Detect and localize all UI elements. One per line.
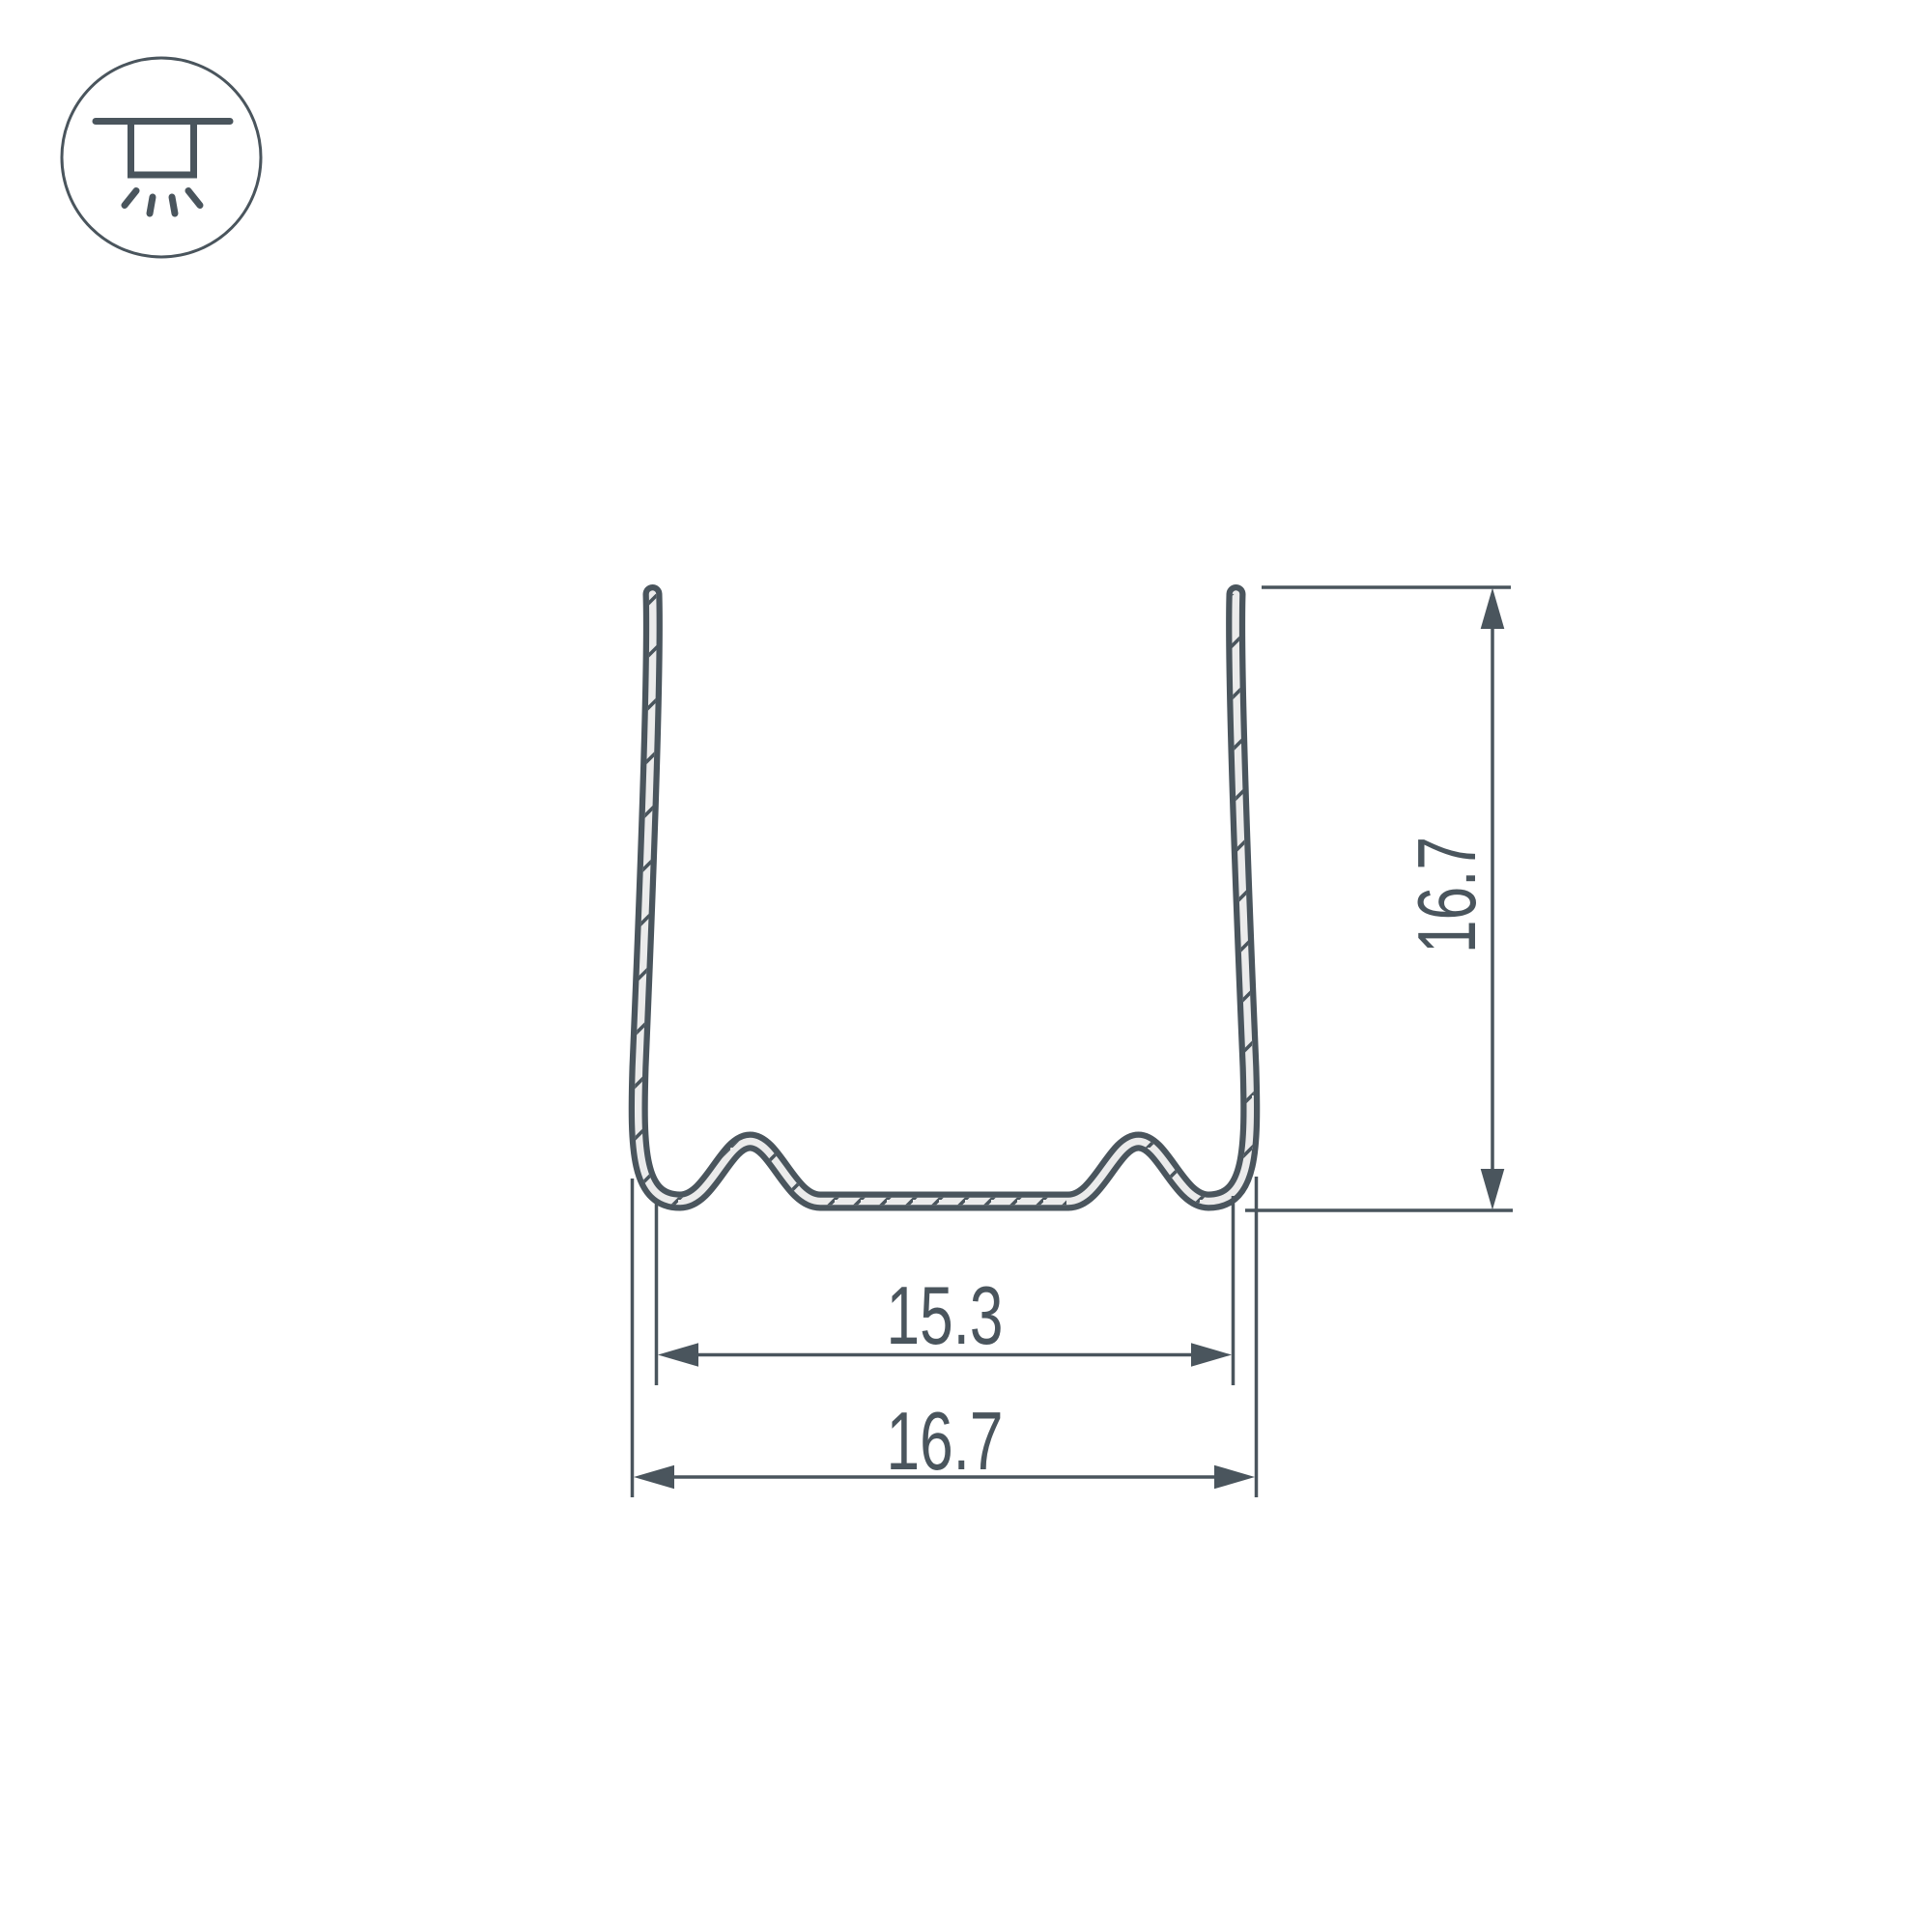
svg-text:16.7: 16.7	[1402, 837, 1493, 953]
svg-text:15.3: 15.3	[887, 1270, 1004, 1362]
svg-text:16.7: 16.7	[887, 1396, 1004, 1488]
